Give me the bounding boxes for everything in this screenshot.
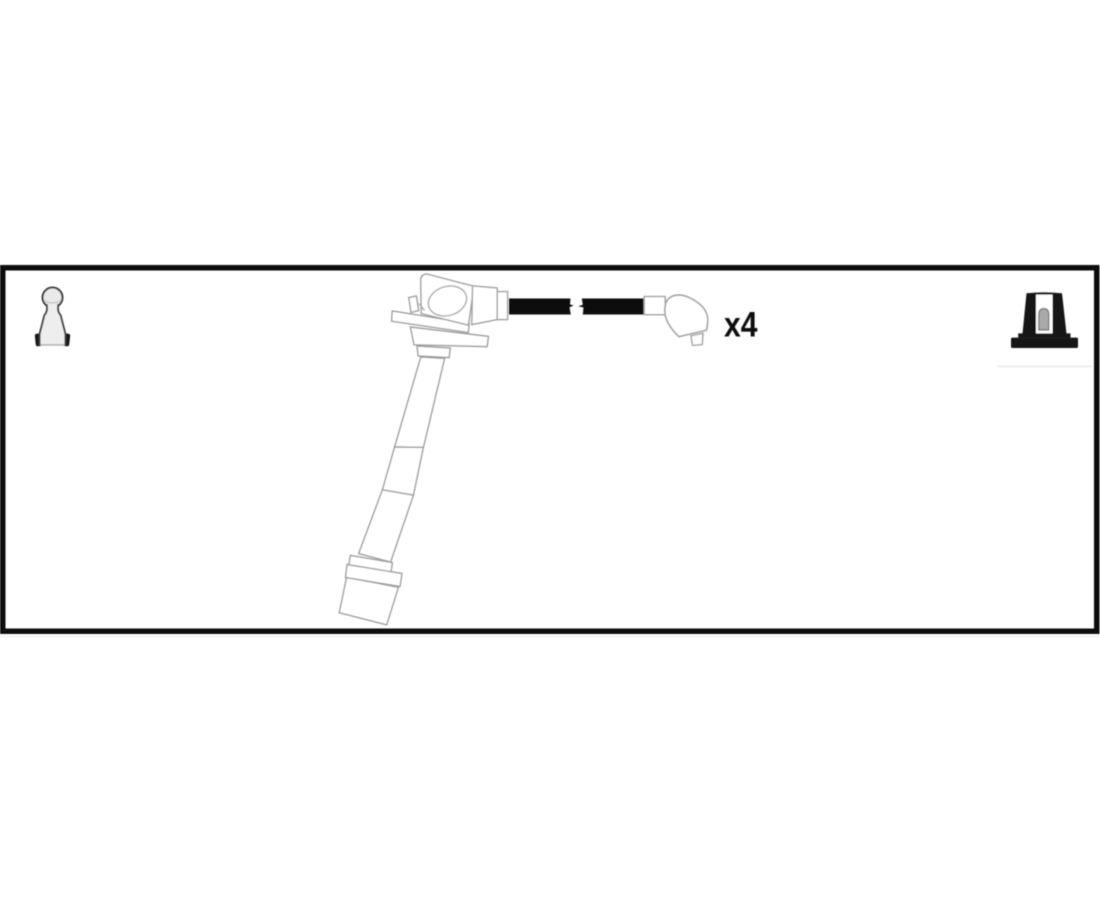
svg-text:x4: x4 (724, 306, 758, 345)
